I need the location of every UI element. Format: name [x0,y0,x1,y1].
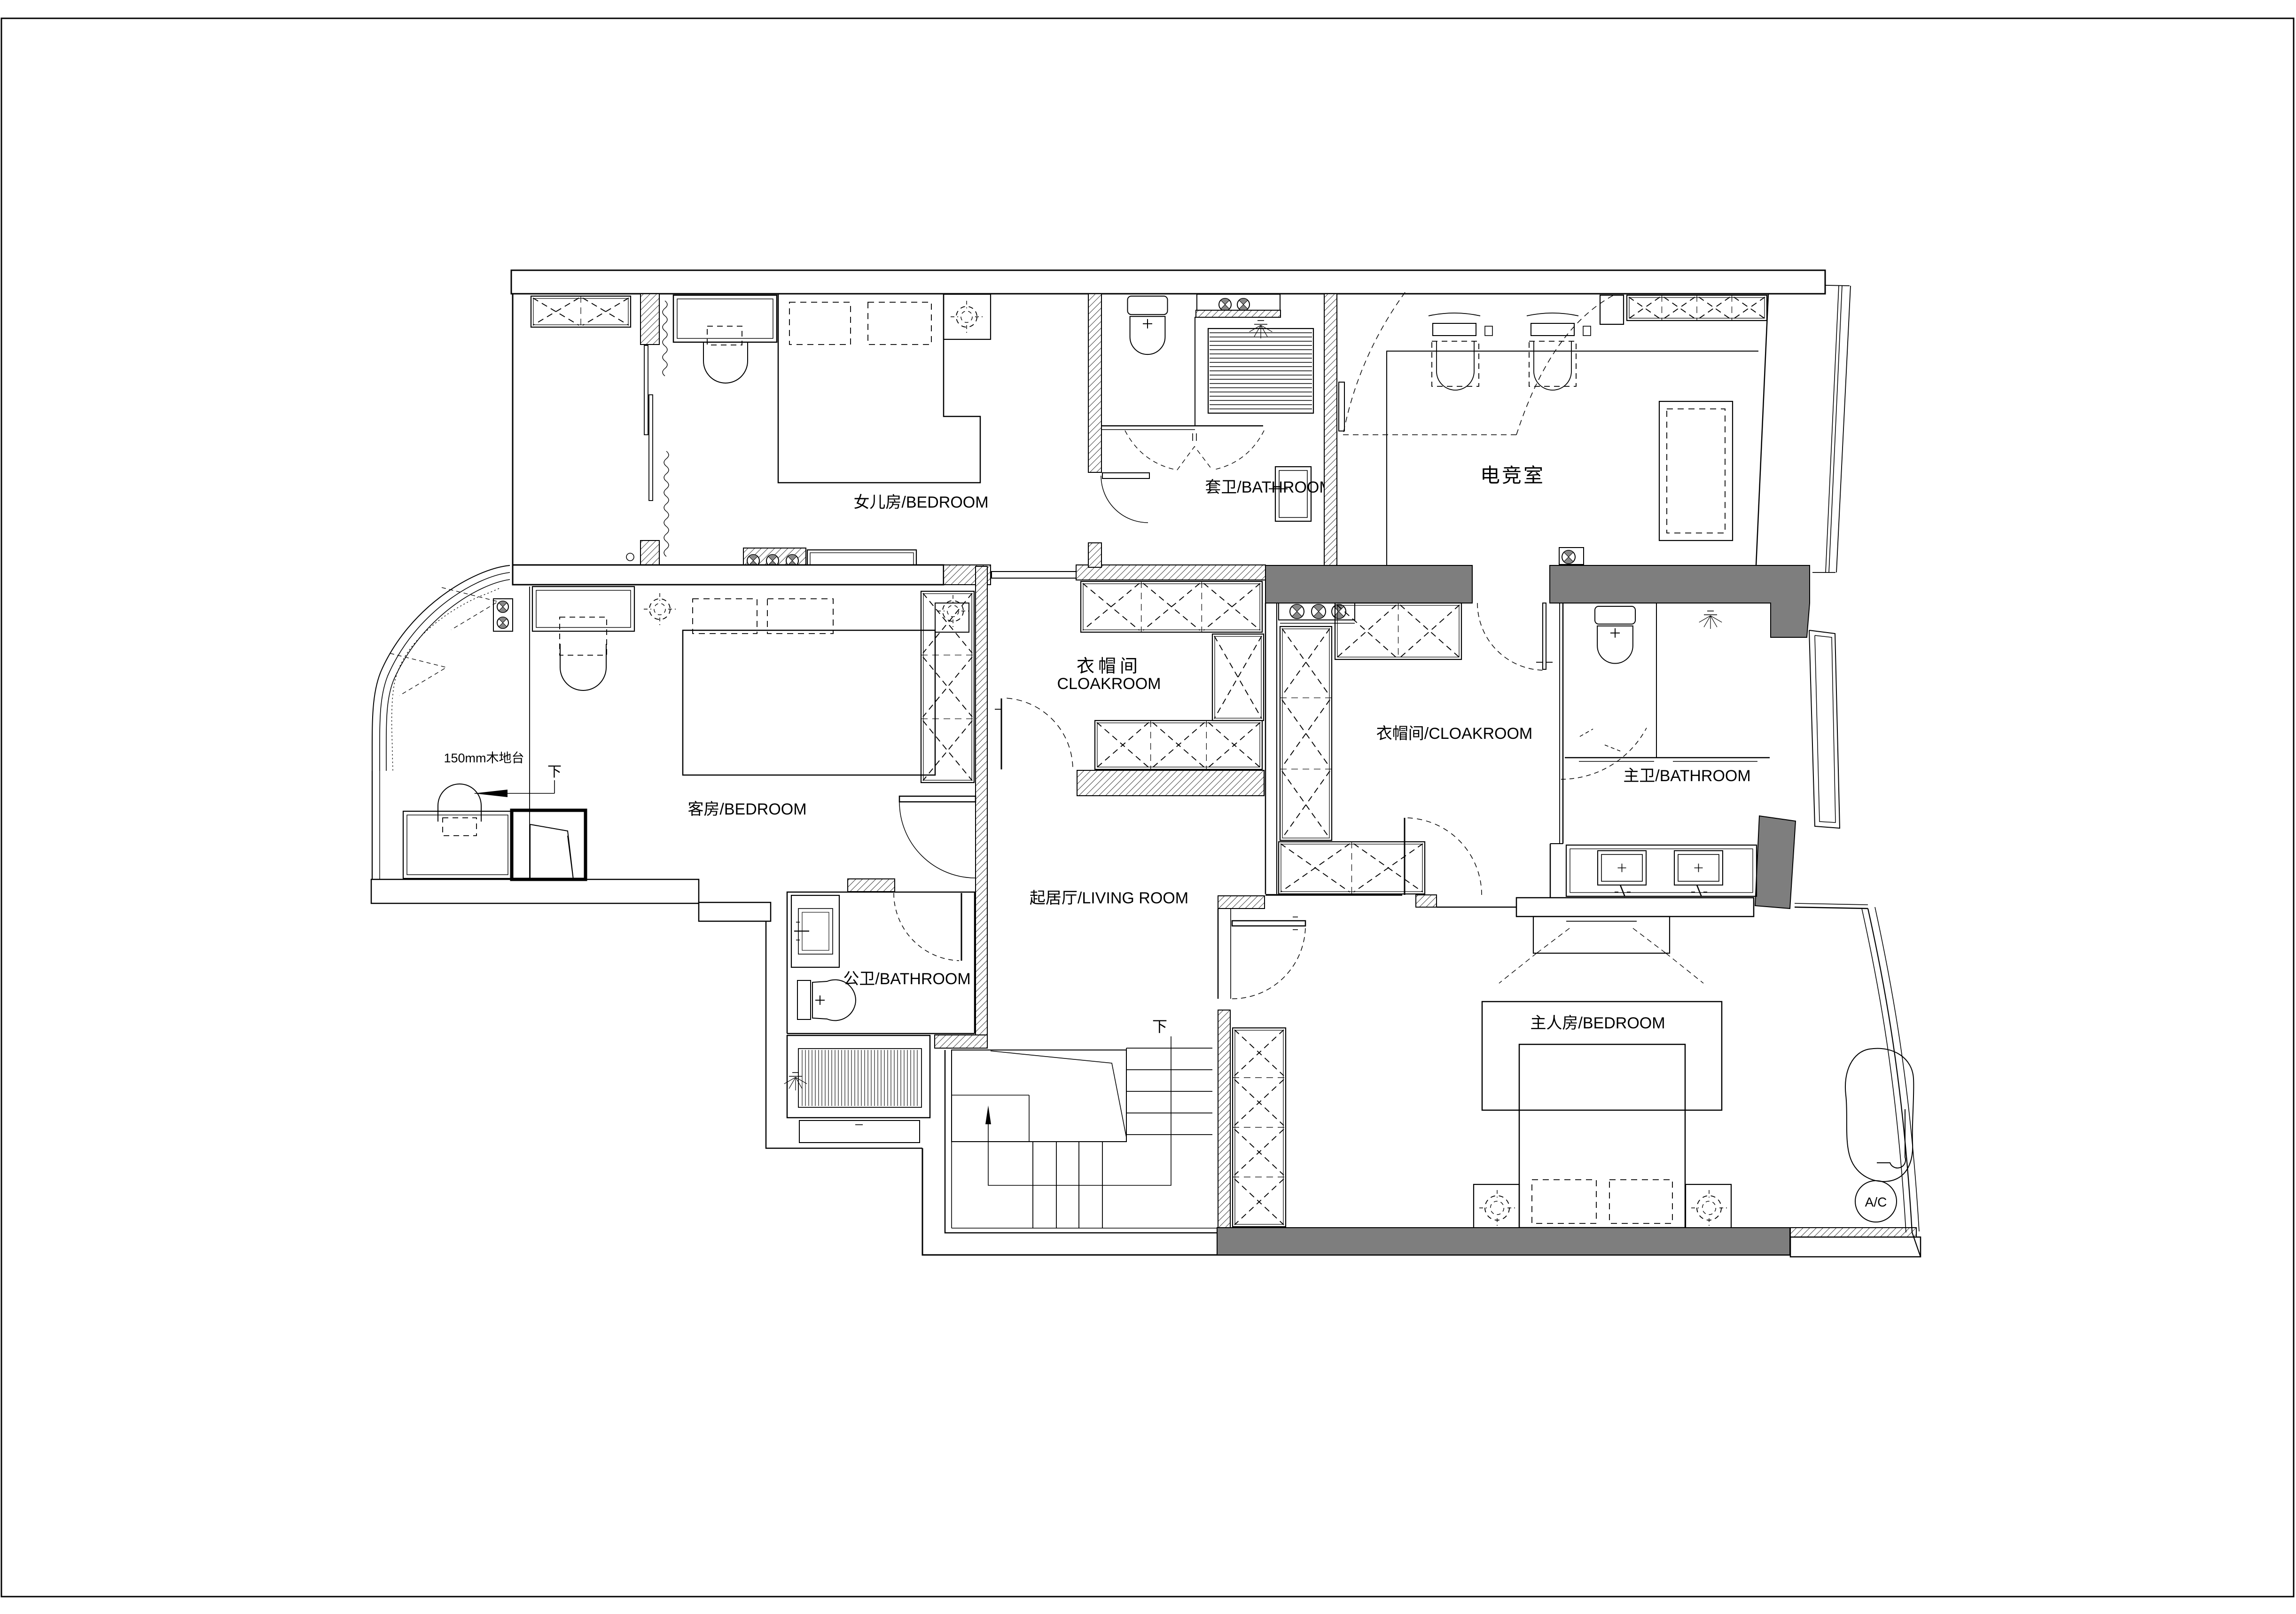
svg-text:下: 下 [1152,1018,1167,1035]
svg-text:公卫/BATHROOM: 公卫/BATHROOM [843,970,970,988]
svg-text:下: 下 [547,764,562,780]
svg-text:主人房/BEDROOM: 主人房/BEDROOM [1530,1014,1665,1032]
svg-text:套卫/BATHROOM: 套卫/BATHROOM [1205,478,1332,496]
svg-text:衣帽间: 衣帽间 [1077,657,1141,676]
svg-text:A/C: A/C [1865,1195,1887,1209]
svg-text:客房/BEDROOM: 客房/BEDROOM [687,800,806,818]
svg-text:电竞室: 电竞室 [1480,464,1545,486]
svg-text:女儿房/BEDROOM: 女儿房/BEDROOM [853,494,988,511]
svg-text:起居厅/LIVING ROOM: 起居厅/LIVING ROOM [1030,889,1188,907]
svg-text:CLOAKROOM: CLOAKROOM [1057,675,1161,693]
svg-text:150mm木地台: 150mm木地台 [444,751,524,765]
svg-text:主卫/BATHROOM: 主卫/BATHROOM [1623,767,1750,785]
svg-text:衣帽间/CLOAKROOM: 衣帽间/CLOAKROOM [1376,725,1532,743]
